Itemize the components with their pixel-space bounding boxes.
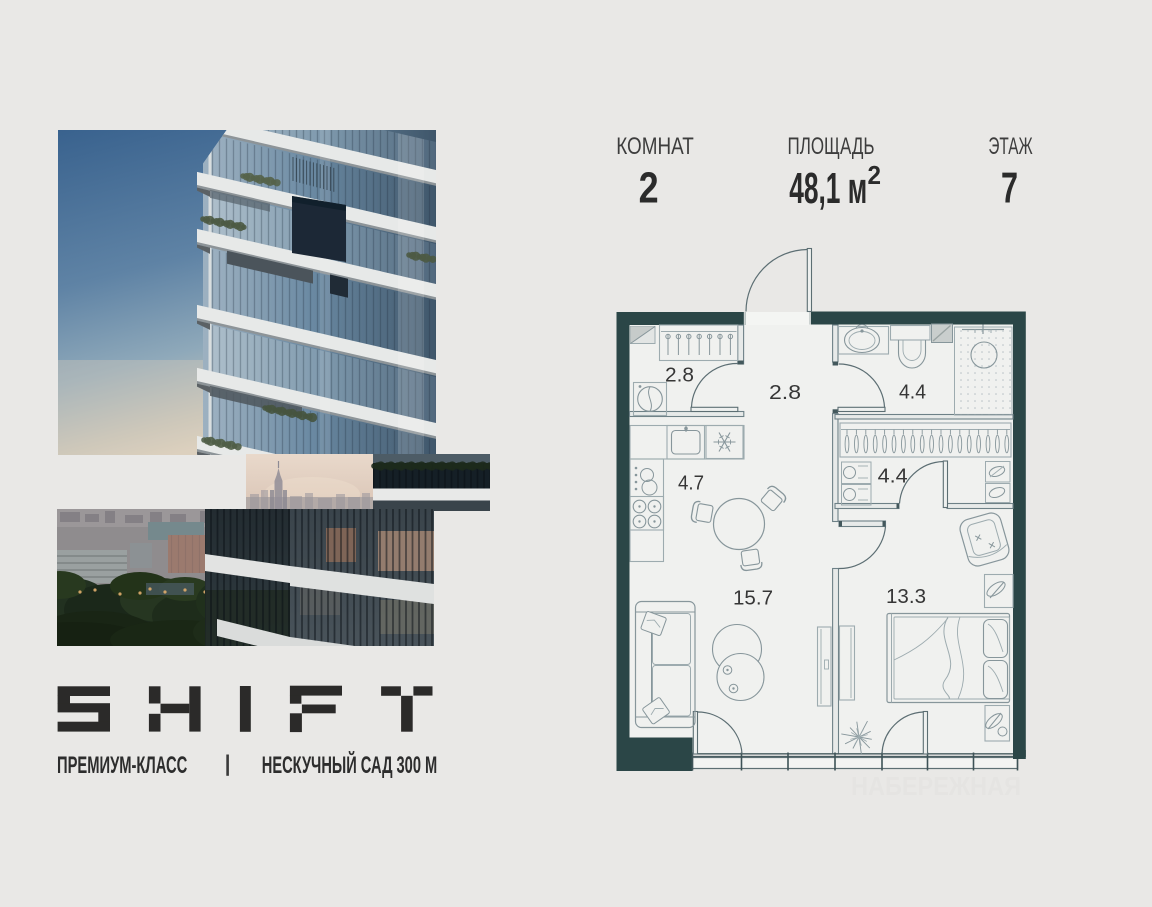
svg-text:48,1 м: 48,1 м xyxy=(789,164,867,213)
svg-text:4.4: 4.4 xyxy=(899,381,926,404)
svg-text:НАБЕРЕЖНАЯ: НАБЕРЕЖНАЯ xyxy=(851,771,1021,801)
svg-text:НЕСКУЧНЫЙ САД 300 М: НЕСКУЧНЫЙ САД 300 М xyxy=(262,751,437,779)
svg-text:4.4: 4.4 xyxy=(878,465,908,488)
svg-text:ЭТАЖ: ЭТАЖ xyxy=(988,133,1032,160)
svg-text:2: 2 xyxy=(639,163,659,212)
svg-text:2.8: 2.8 xyxy=(665,364,694,387)
svg-text:7: 7 xyxy=(1001,163,1018,212)
svg-text:ПРЕМИУМ-КЛАСС: ПРЕМИУМ-КЛАСС xyxy=(57,752,187,779)
svg-text:2.8: 2.8 xyxy=(769,381,801,404)
svg-text:13.3: 13.3 xyxy=(886,585,926,608)
svg-text:15.7: 15.7 xyxy=(733,587,773,610)
svg-text:2: 2 xyxy=(868,160,882,190)
svg-text:ПЛОЩАДЬ: ПЛОЩАДЬ xyxy=(788,133,875,160)
svg-text:4.7: 4.7 xyxy=(678,472,704,495)
svg-text:КОМНАТ: КОМНАТ xyxy=(616,133,694,160)
